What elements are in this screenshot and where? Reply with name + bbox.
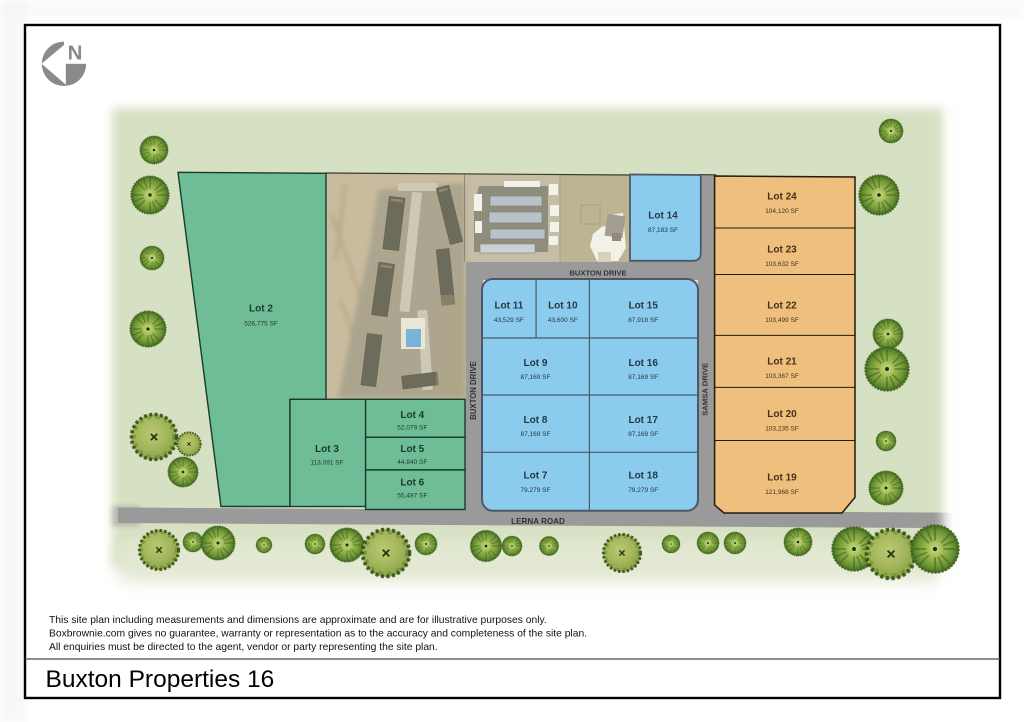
- svg-text:BUXTON DRIVE: BUXTON DRIVE: [569, 269, 626, 278]
- svg-text:Lot 24: Lot 24: [767, 192, 797, 203]
- svg-text:104,120 SF: 104,120 SF: [765, 208, 799, 215]
- svg-text:87,183 SF: 87,183 SF: [648, 227, 678, 234]
- svg-text:Lot 5: Lot 5: [400, 444, 424, 455]
- svg-text:SAMSA DRIVE: SAMSA DRIVE: [700, 363, 709, 416]
- svg-text:Lot 2: Lot 2: [249, 304, 273, 315]
- svg-text:Lot 3: Lot 3: [315, 444, 339, 455]
- svg-text:Lot 11: Lot 11: [494, 301, 523, 312]
- svg-text:87,169 SF: 87,169 SF: [521, 374, 551, 381]
- svg-text:52,079 SF: 52,079 SF: [397, 425, 427, 432]
- svg-text:526,775 SF: 526,775 SF: [244, 321, 278, 328]
- svg-text:43,529 SF: 43,529 SF: [494, 317, 524, 324]
- svg-text:Buxton Properties 16: Buxton Properties 16: [46, 666, 275, 693]
- svg-text:103,367 SF: 103,367 SF: [765, 373, 799, 380]
- svg-text:Lot 21: Lot 21: [767, 357, 797, 368]
- svg-text:87,169 SF: 87,169 SF: [521, 431, 551, 438]
- svg-text:103,499 SF: 103,499 SF: [765, 317, 799, 324]
- svg-text:113,091 SF: 113,091 SF: [310, 460, 343, 467]
- svg-text:Lot 15: Lot 15: [628, 301, 658, 312]
- svg-text:79,279 SF: 79,279 SF: [628, 487, 658, 494]
- svg-text:LERNA ROAD: LERNA ROAD: [511, 517, 565, 526]
- svg-text:BUXTON DRIVE: BUXTON DRIVE: [469, 361, 478, 420]
- svg-text:Lot 16: Lot 16: [628, 358, 658, 369]
- svg-text:103,632 SF: 103,632 SF: [765, 261, 799, 268]
- svg-text:103,235 SF: 103,235 SF: [765, 426, 799, 433]
- svg-text:Lot 10: Lot 10: [548, 301, 578, 312]
- svg-text:Lot 22: Lot 22: [767, 301, 797, 312]
- svg-text:Lot 18: Lot 18: [628, 471, 658, 482]
- svg-text:Lot 8: Lot 8: [524, 415, 548, 426]
- svg-text:55,487 SF: 55,487 SF: [397, 492, 427, 499]
- svg-text:Lot 23: Lot 23: [767, 245, 797, 256]
- svg-text:Lot 4: Lot 4: [400, 410, 424, 421]
- svg-text:44,840 SF: 44,840 SF: [397, 459, 427, 466]
- svg-text:87,169 SF: 87,169 SF: [628, 374, 658, 381]
- svg-text:Boxbrownie.com gives no guaran: Boxbrownie.com gives no guarantee, warra…: [49, 629, 587, 640]
- svg-text:Lot 20: Lot 20: [767, 409, 797, 420]
- svg-text:87,169 SF: 87,169 SF: [628, 431, 658, 438]
- svg-text:Lot 9: Lot 9: [524, 358, 548, 369]
- svg-text:Lot 19: Lot 19: [767, 473, 797, 484]
- svg-text:N: N: [68, 42, 83, 65]
- svg-text:Lot 6: Lot 6: [400, 477, 424, 488]
- svg-text:Lot 7: Lot 7: [524, 471, 548, 482]
- svg-text:121,968 SF: 121,968 SF: [765, 489, 799, 496]
- svg-text:43,600 SF: 43,600 SF: [548, 317, 578, 324]
- svg-text:All enquiries must be directed: All enquiries must be directed to the ag…: [49, 642, 438, 653]
- svg-text:87,918 SF: 87,918 SF: [628, 317, 658, 324]
- svg-text:Lot 14: Lot 14: [648, 211, 678, 222]
- svg-text:79,279 SF: 79,279 SF: [521, 487, 551, 494]
- svg-text:Lot 17: Lot 17: [628, 415, 658, 426]
- svg-text:This site plan including measu: This site plan including measurements an…: [49, 615, 547, 626]
